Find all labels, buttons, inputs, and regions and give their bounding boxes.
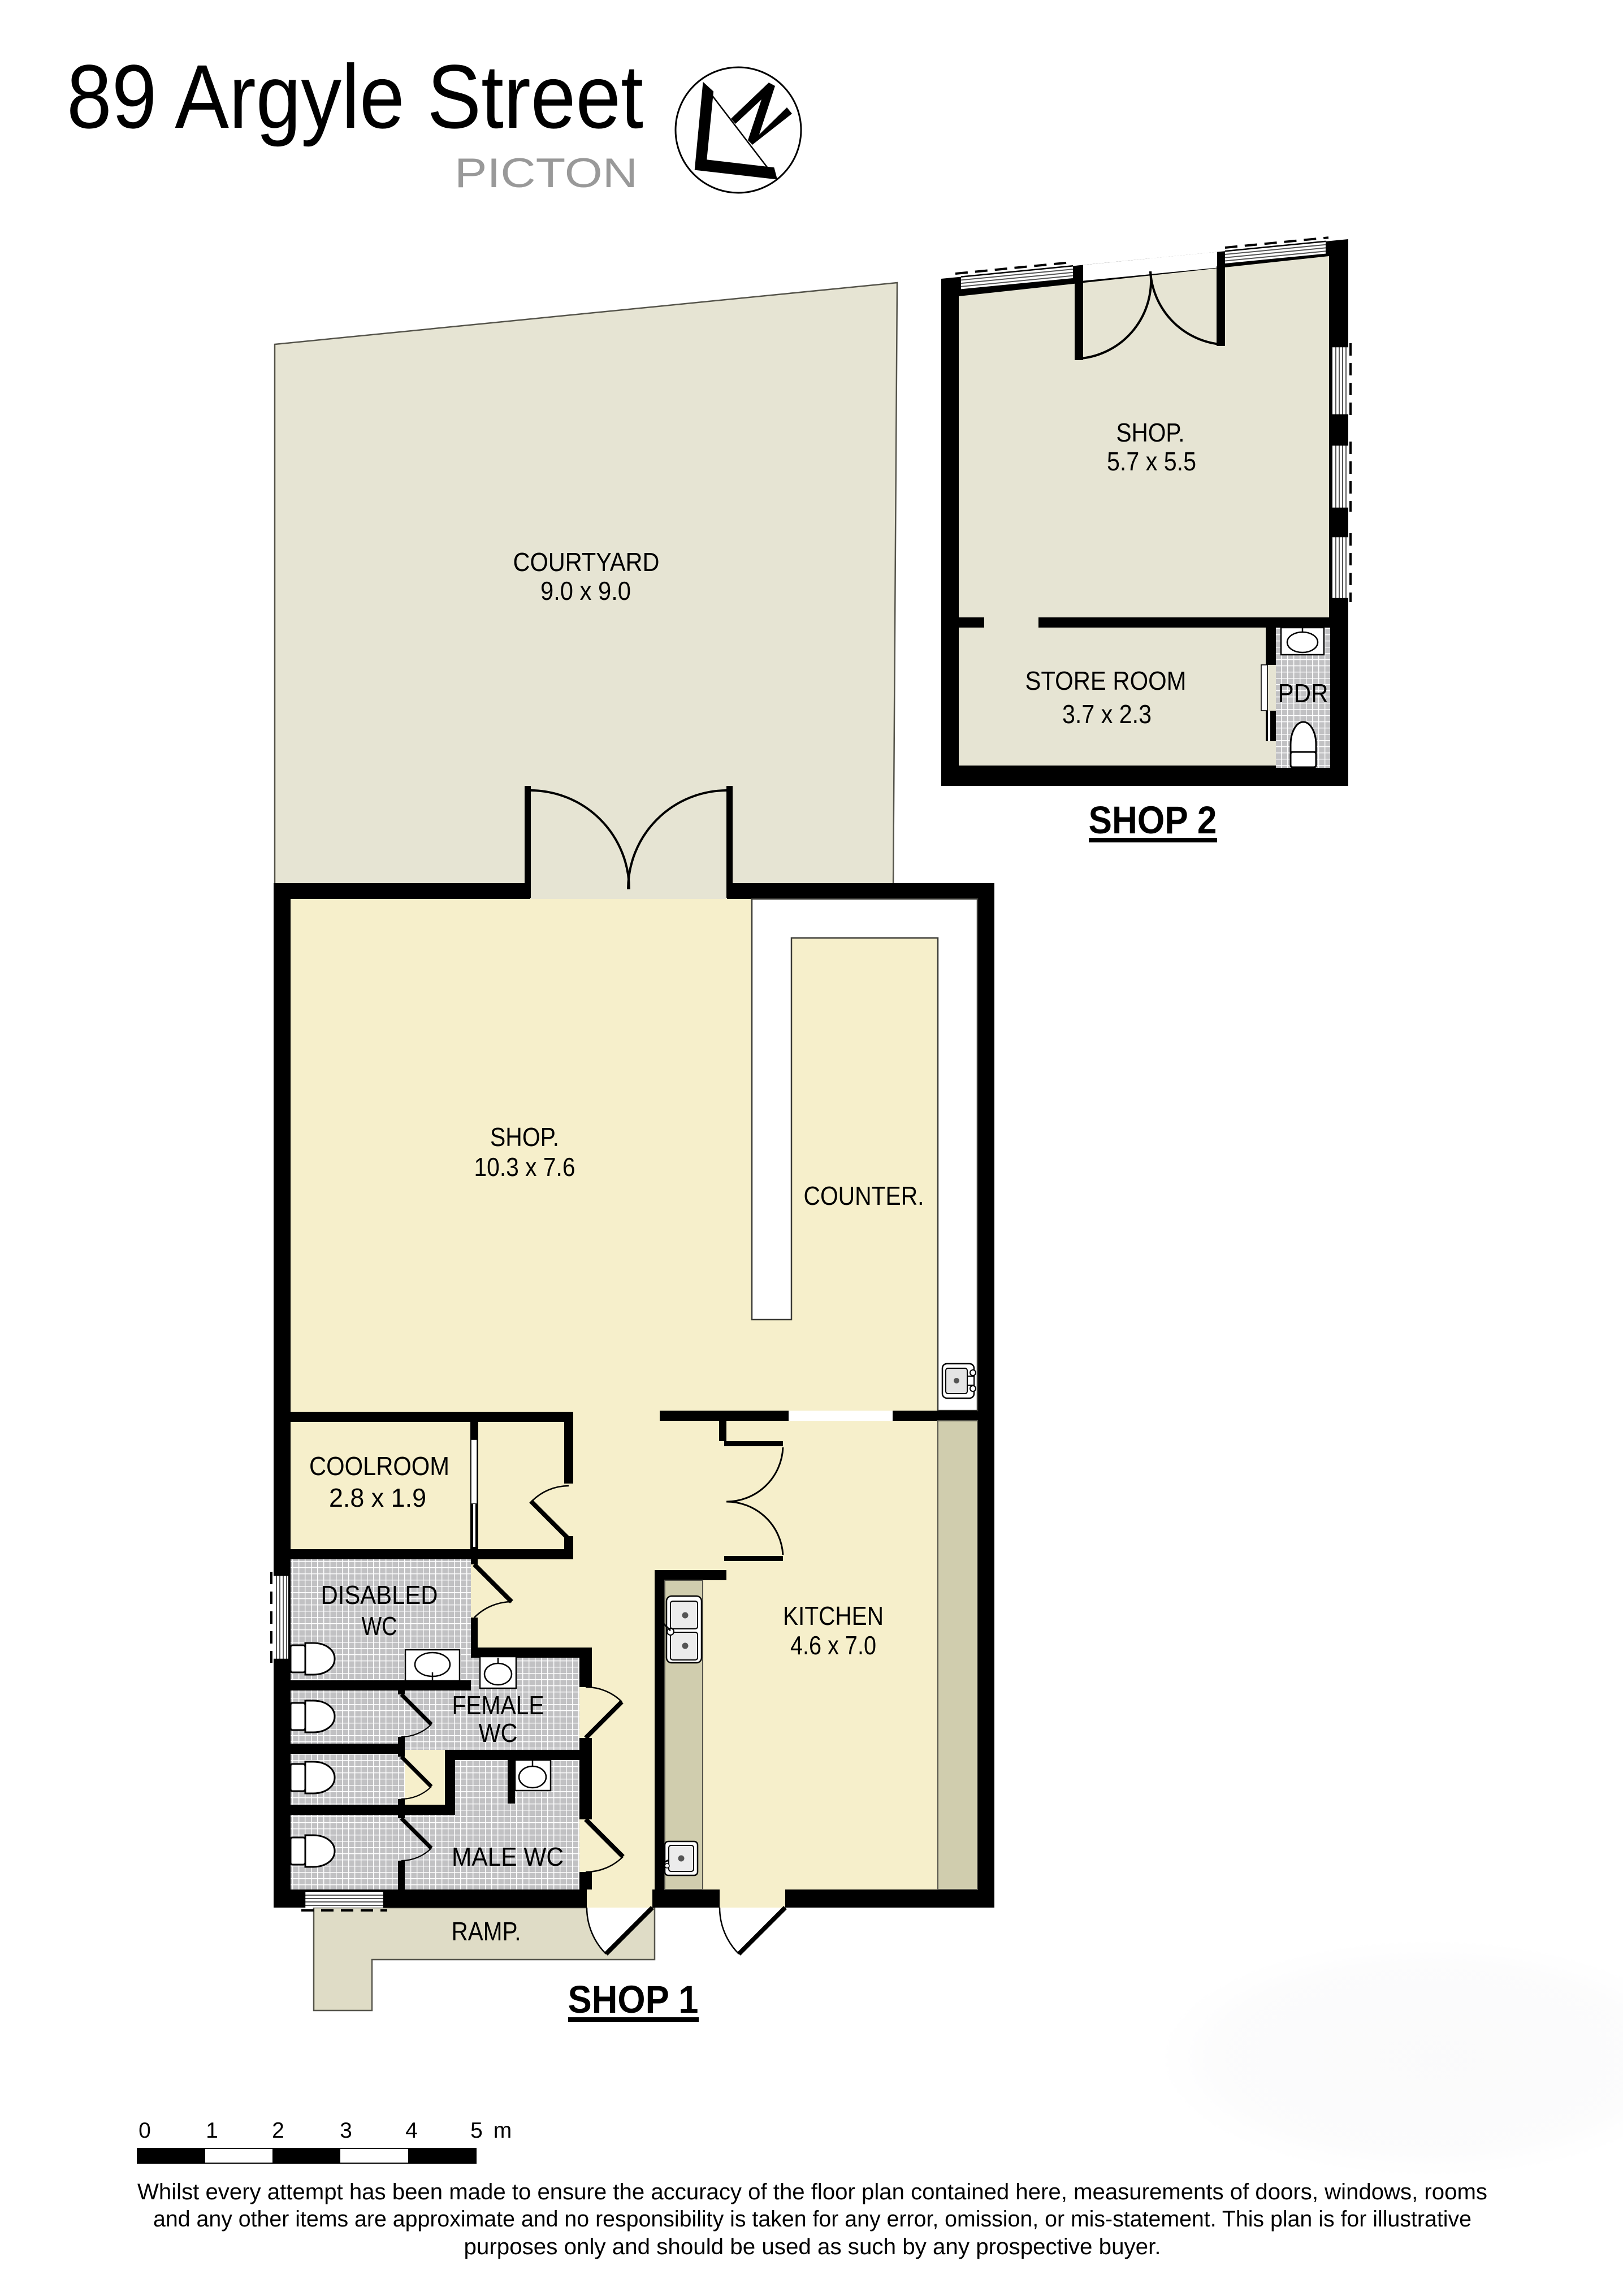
svg-text:0: 0 — [139, 2118, 151, 2143]
svg-text:and any other items are approx: and any other items are approximate and … — [153, 2207, 1471, 2232]
svg-text:5: 5 — [470, 2118, 483, 2143]
svg-text:m: m — [494, 2118, 512, 2143]
svg-text:SHOP 1: SHOP 1 — [568, 1978, 699, 2021]
svg-text:89 Argyle Street: 89 Argyle Street — [67, 46, 643, 147]
svg-text:3.7 x 2.3: 3.7 x 2.3 — [1062, 699, 1152, 729]
svg-text:SHOP 2: SHOP 2 — [1089, 798, 1217, 842]
svg-text:purposes only and should be us: purposes only and should be used as such… — [464, 2234, 1161, 2259]
svg-text:STORE ROOM: STORE ROOM — [1025, 666, 1187, 695]
svg-text:COOLROOM: COOLROOM — [309, 1451, 449, 1481]
svg-text:4: 4 — [405, 2118, 418, 2143]
svg-text:COURTYARD: COURTYARD — [513, 547, 660, 577]
svg-text:3: 3 — [340, 2118, 352, 2143]
svg-text:2.8 x 1.9: 2.8 x 1.9 — [329, 1483, 426, 1512]
svg-text:WC: WC — [362, 1611, 397, 1641]
svg-text:MALE WC: MALE WC — [452, 1842, 564, 1871]
svg-text:9.0 x 9.0: 9.0 x 9.0 — [540, 576, 631, 606]
svg-text:DISABLED: DISABLED — [321, 1580, 438, 1610]
svg-text:PDR: PDR — [1278, 678, 1328, 708]
svg-text:2: 2 — [272, 2118, 284, 2143]
svg-text:Whilst every attempt has been: Whilst every attempt has been made to en… — [137, 2180, 1487, 2204]
svg-text:4.6 x 7.0: 4.6 x 7.0 — [790, 1631, 876, 1660]
svg-text:RAMP.: RAMP. — [452, 1917, 521, 1946]
svg-text:COUNTER.: COUNTER. — [804, 1181, 924, 1210]
svg-text:PICTON: PICTON — [455, 150, 638, 196]
svg-text:5.7 x 5.5: 5.7 x 5.5 — [1107, 447, 1196, 476]
svg-text:FEMALE: FEMALE — [452, 1690, 544, 1720]
svg-text:KITCHEN: KITCHEN — [783, 1601, 884, 1631]
svg-text:SHOP.: SHOP. — [1116, 418, 1185, 447]
svg-text:1: 1 — [206, 2118, 218, 2143]
svg-text:SHOP.: SHOP. — [490, 1122, 559, 1152]
svg-text:10.3 x 7.6: 10.3 x 7.6 — [474, 1152, 575, 1182]
svg-text:WC: WC — [479, 1718, 518, 1748]
